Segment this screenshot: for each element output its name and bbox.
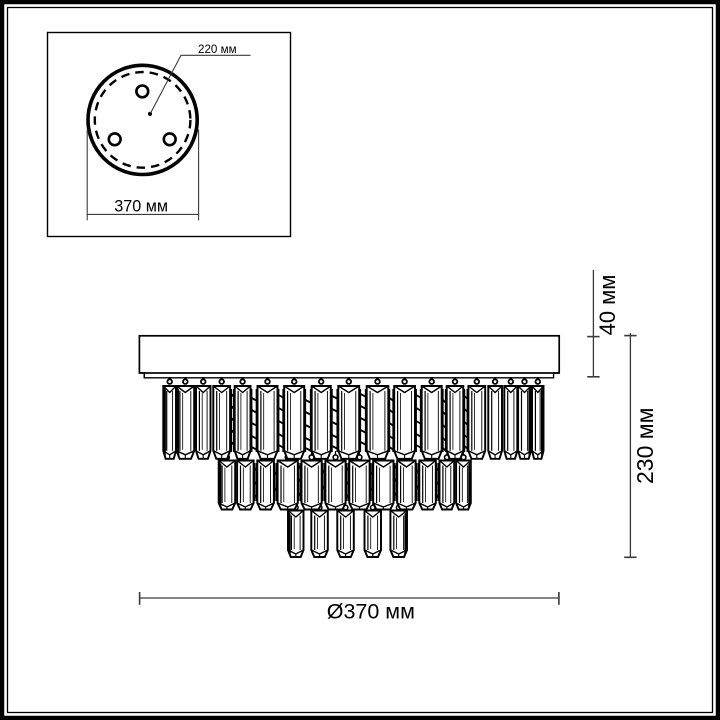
svg-text:220 мм: 220 мм bbox=[198, 43, 237, 56]
svg-text:370 мм: 370 мм bbox=[114, 198, 168, 216]
svg-text:230 мм: 230 мм bbox=[632, 408, 658, 484]
svg-text:Ø370 мм: Ø370 мм bbox=[327, 599, 415, 623]
svg-text:40 мм: 40 мм bbox=[595, 275, 620, 336]
